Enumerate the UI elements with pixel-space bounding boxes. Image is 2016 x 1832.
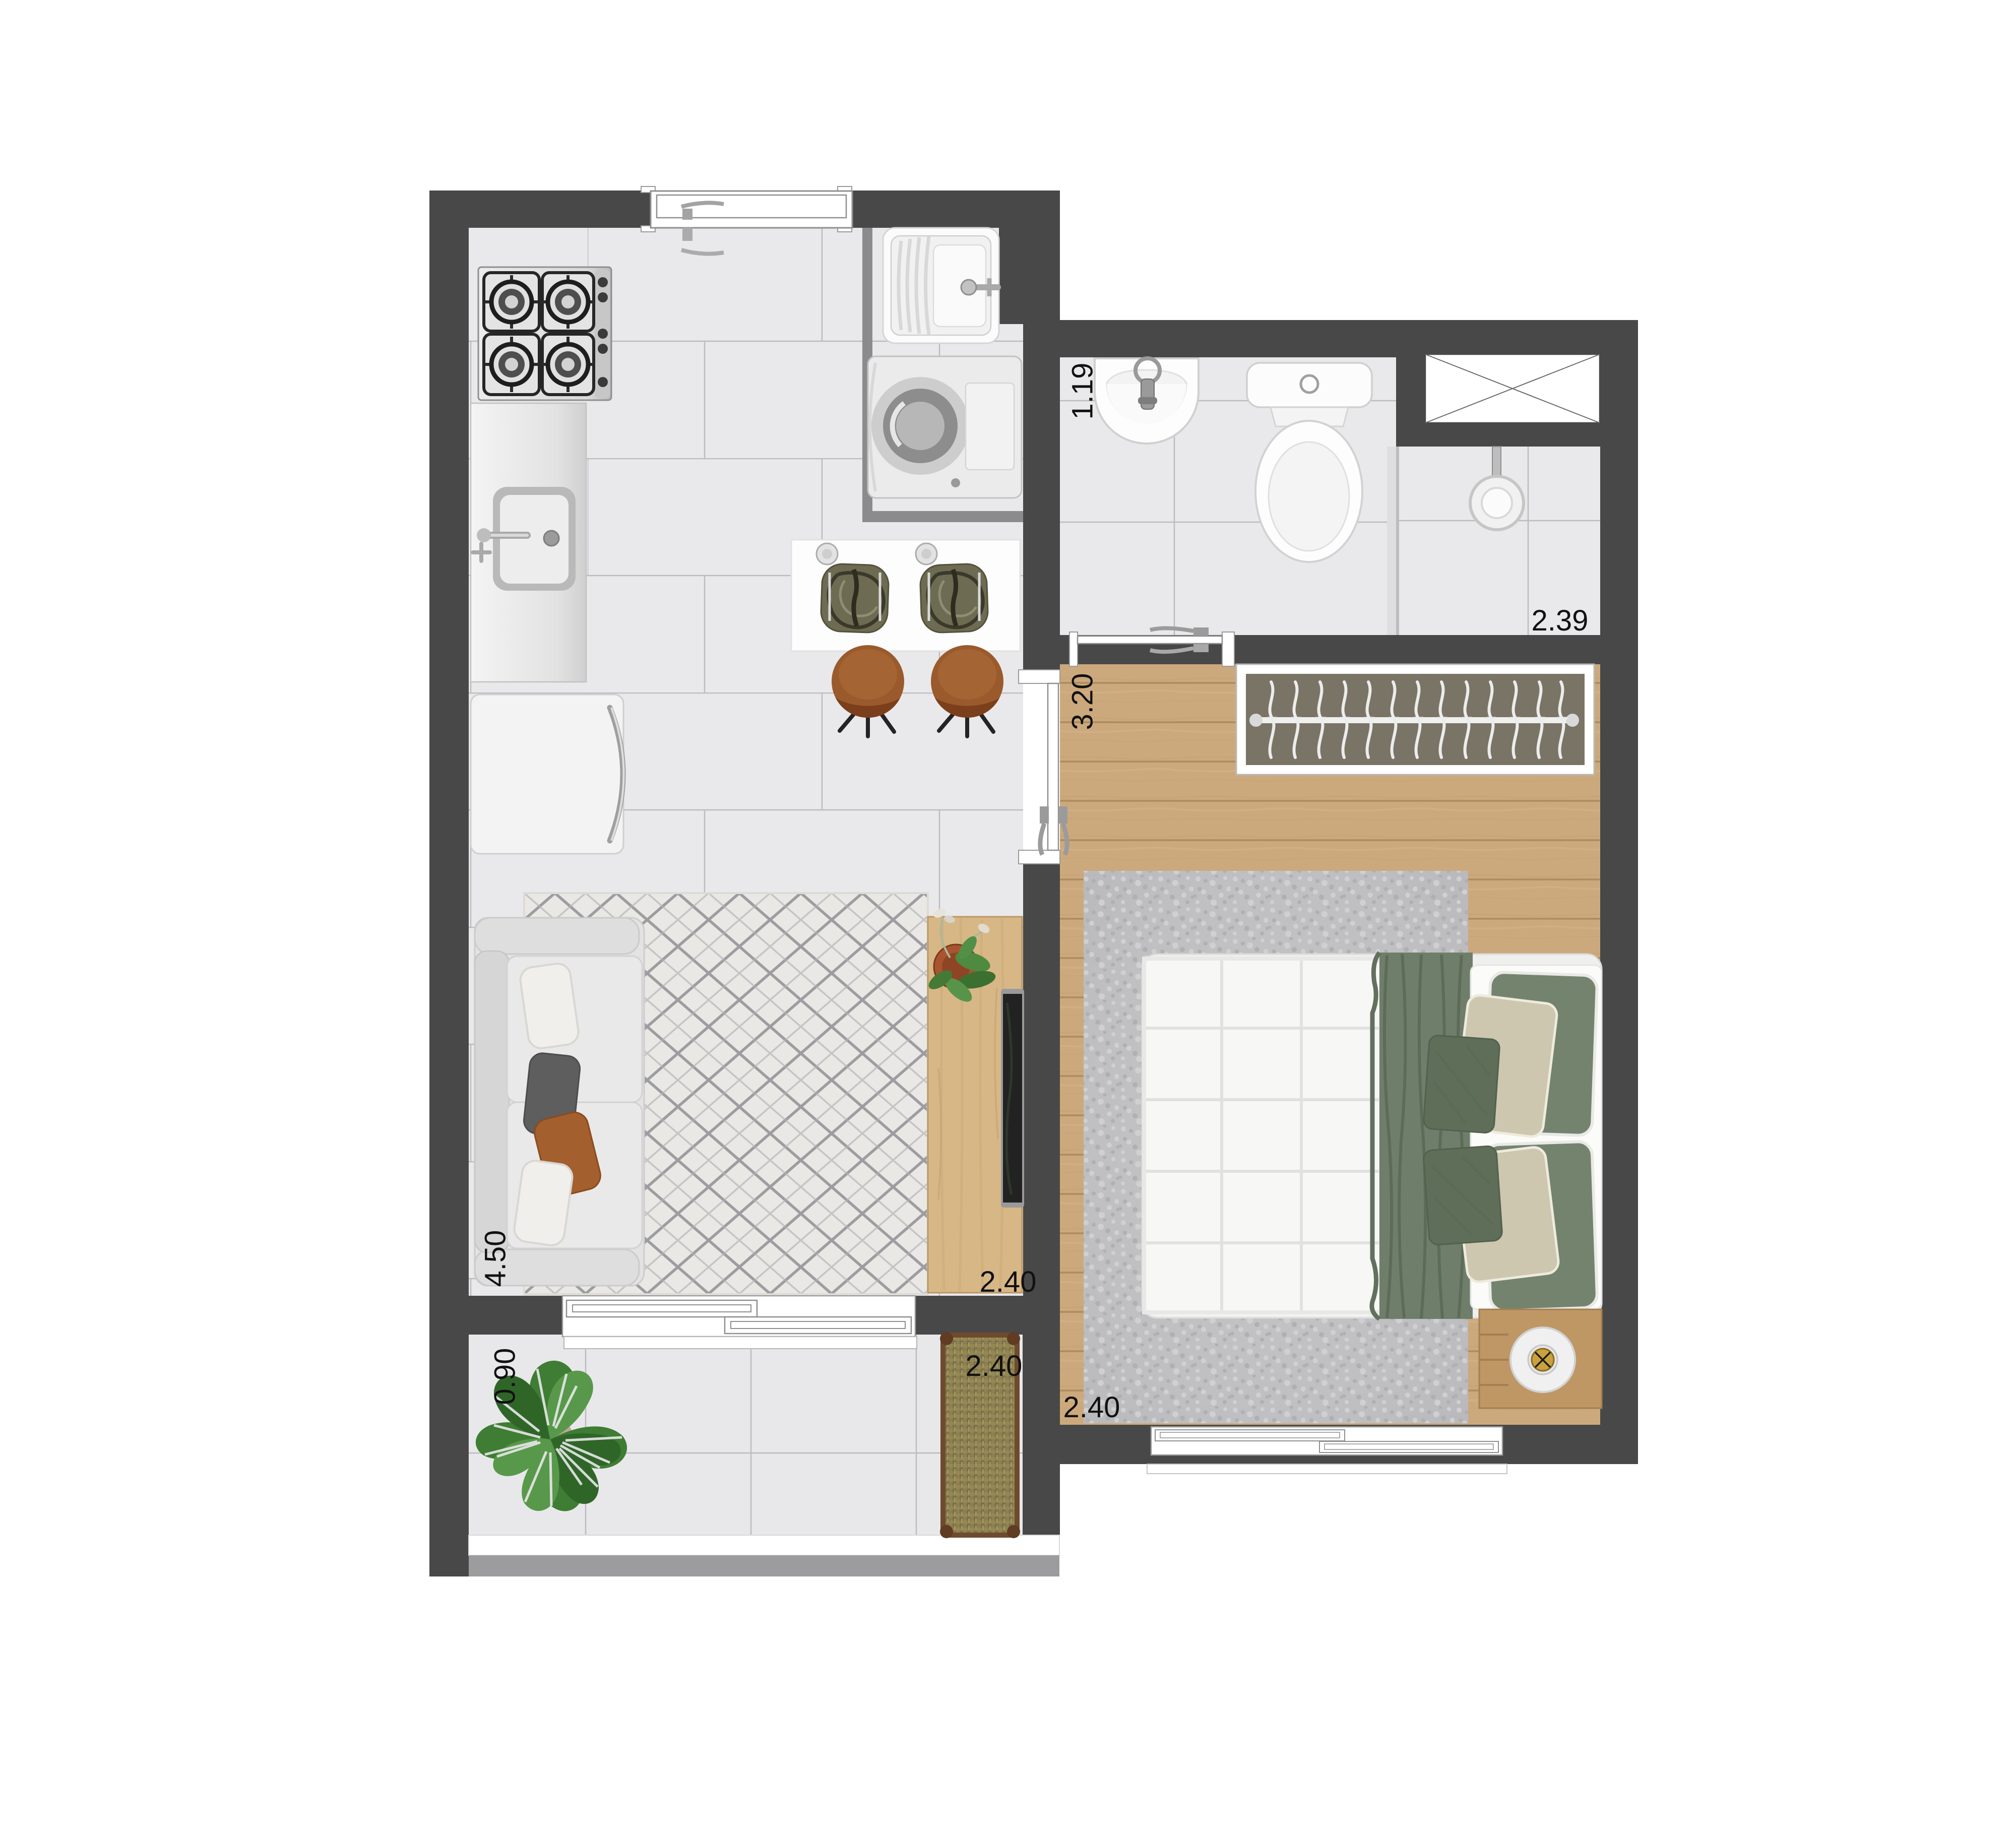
svg-text:3.20: 3.20 (1066, 673, 1099, 730)
svg-text:2.40: 2.40 (966, 1350, 1023, 1382)
svg-text:2.39: 2.39 (1532, 604, 1589, 637)
svg-text:2.40: 2.40 (980, 1266, 1037, 1298)
svg-text:0.90: 0.90 (488, 1348, 521, 1405)
svg-text:2.40: 2.40 (1063, 1391, 1120, 1424)
svg-text:4.50: 4.50 (479, 1230, 512, 1287)
svg-text:1.19: 1.19 (1066, 363, 1099, 420)
